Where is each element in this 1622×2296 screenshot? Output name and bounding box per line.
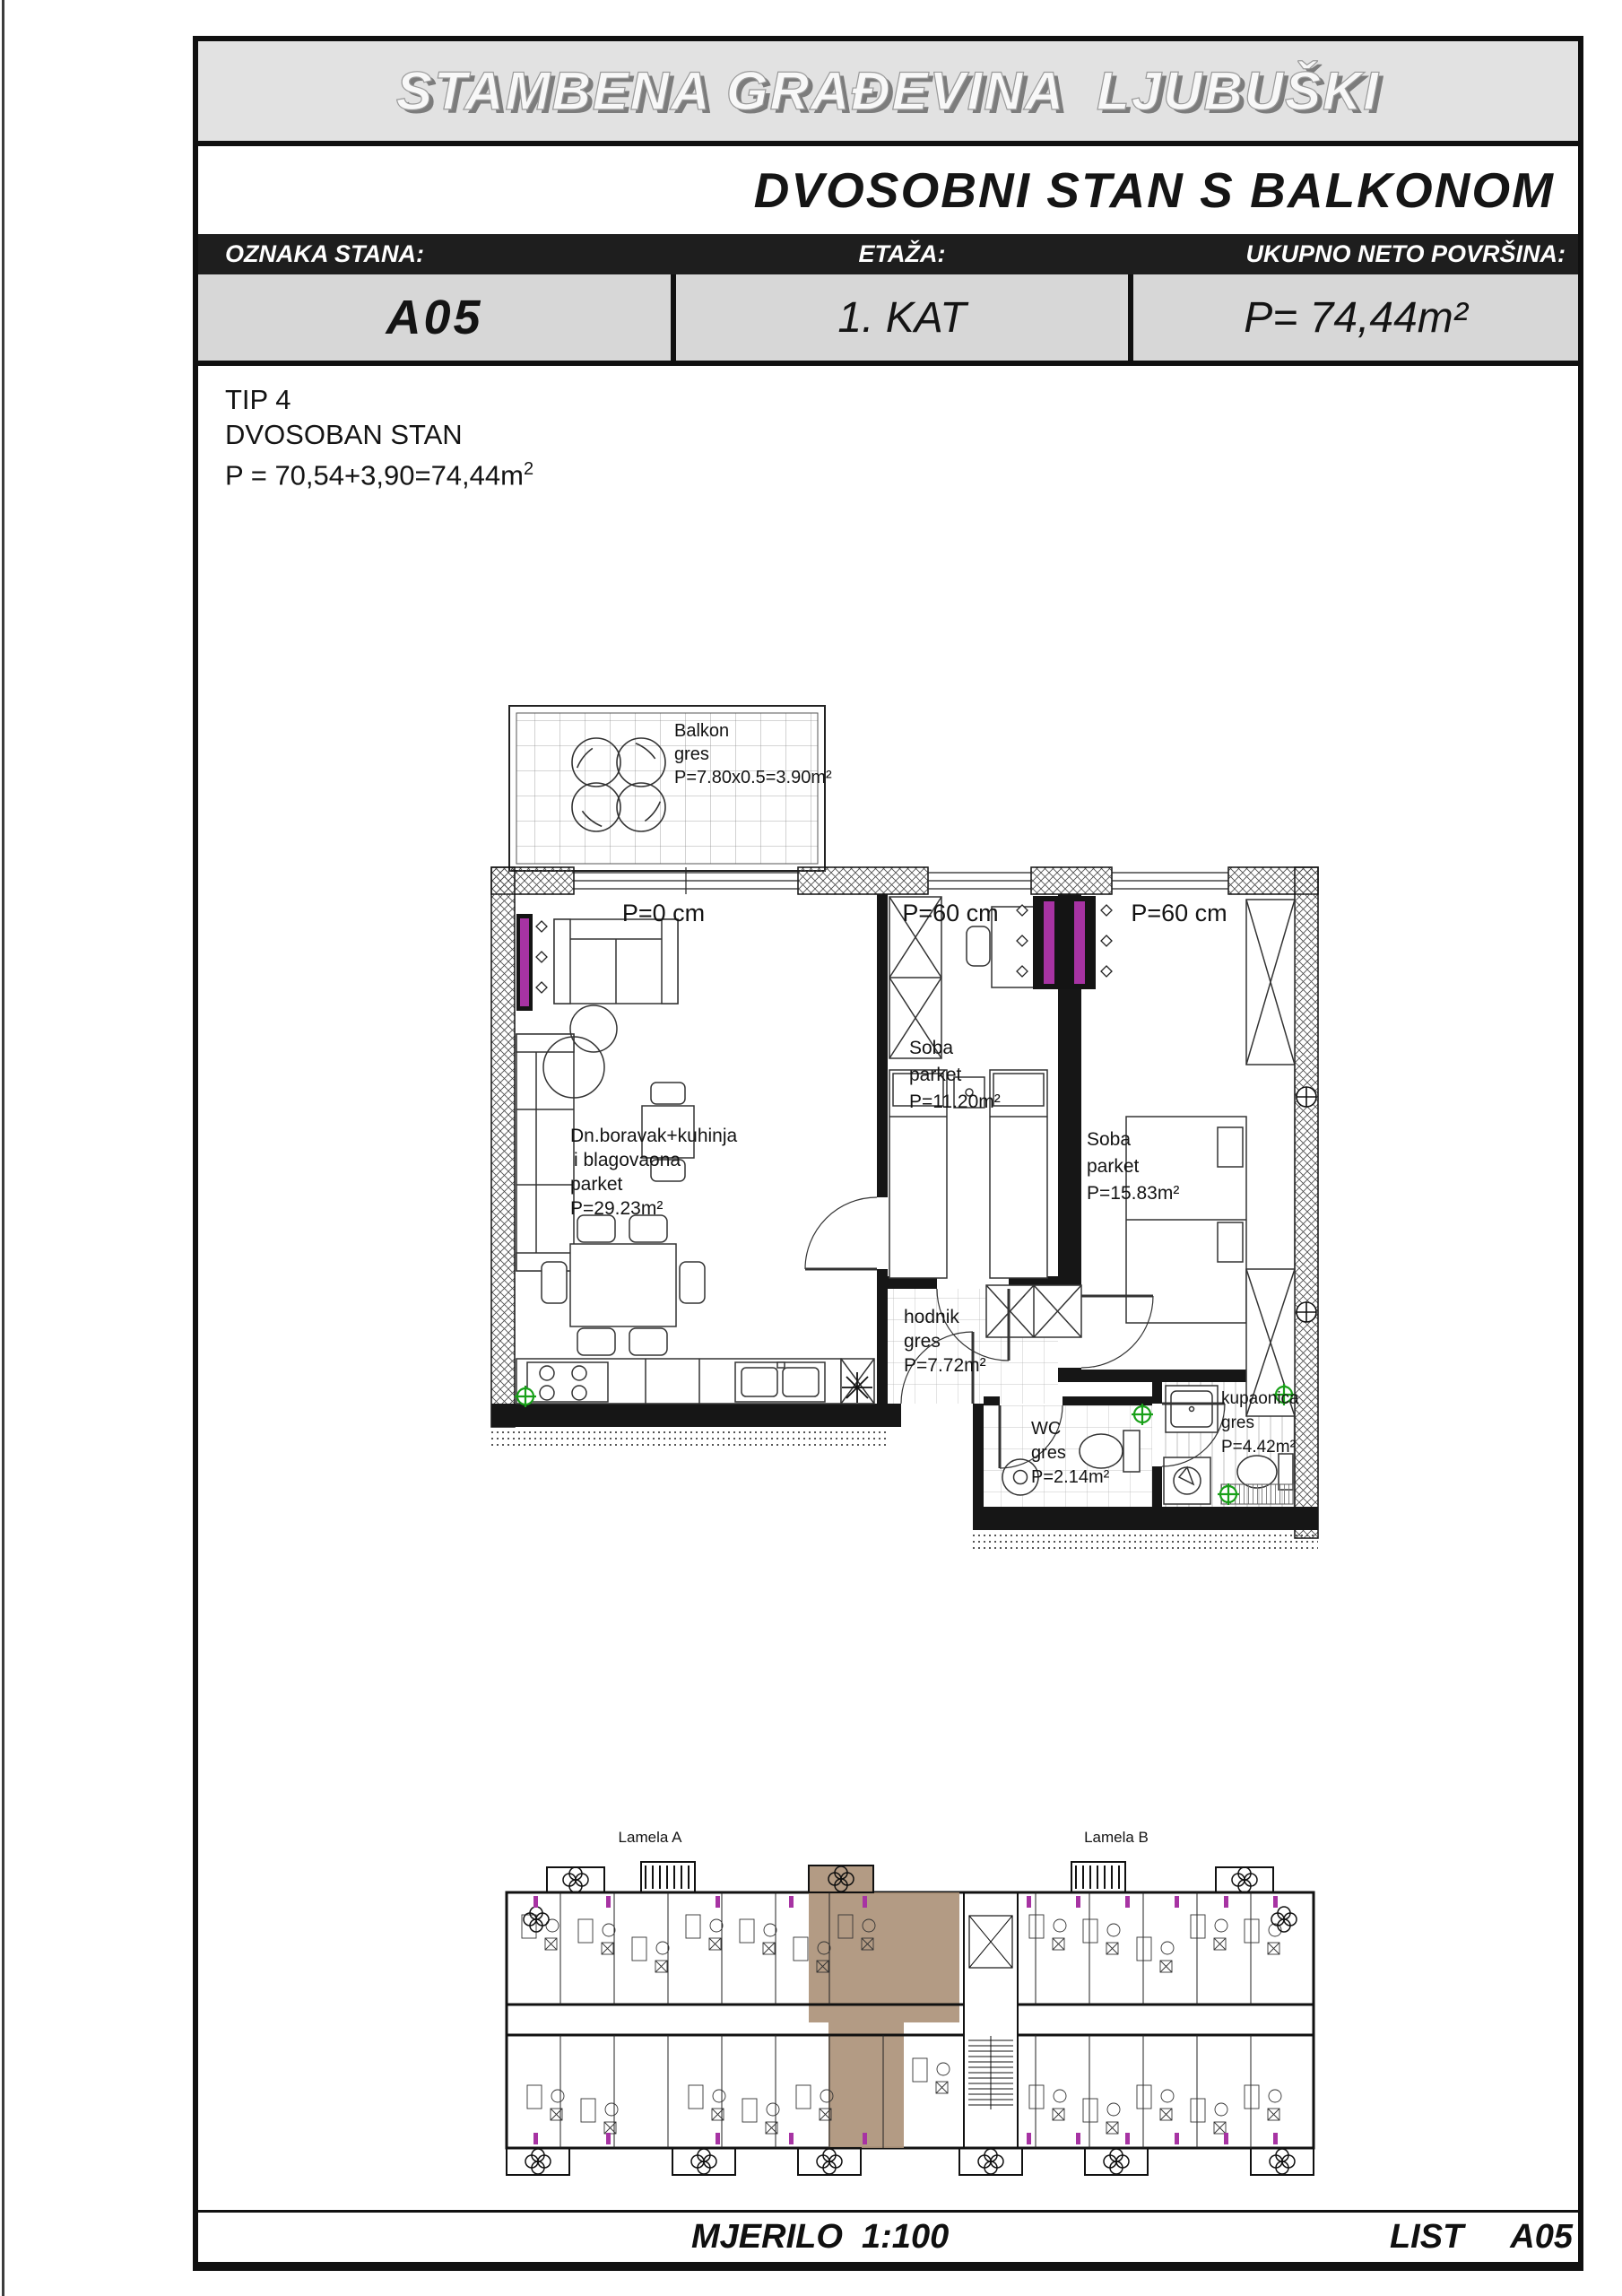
sheet-group: LIST A05 <box>1390 2218 1573 2257</box>
toilet-icon <box>1080 1431 1140 1472</box>
value-etaza: 1. KAT <box>676 274 1128 361</box>
svg-text:Dn.boravak+kuhinja: Dn.boravak+kuhinja <box>570 1126 738 1146</box>
subtitle-band: DVOSOBNI STAN S BALKONOM <box>198 146 1578 234</box>
svg-text:gres: gres <box>1031 1443 1066 1463</box>
washing-machine-icon <box>1164 1457 1210 1504</box>
svg-text:gres: gres <box>1221 1413 1254 1432</box>
balcony-label-finish: gres <box>674 744 709 764</box>
title-band: STAMBENA GRAĐEVINA LJUBUŠKI <box>198 41 1578 146</box>
kitchen-counter <box>516 1359 874 1404</box>
page-edge-line <box>2 0 4 2296</box>
washbasin-icon <box>1166 1386 1218 1432</box>
value-neto-povrsina: P= 74,44m² <box>1133 274 1578 361</box>
svg-text:P=7.72m²: P=7.72m² <box>904 1355 986 1376</box>
label-etaza: ETAŽA: <box>676 240 1128 268</box>
svg-text:gres: gres <box>904 1331 941 1352</box>
info-header-bar: OZNAKA STANA: ETAŽA: UKUPNO NETO POVRŠIN… <box>198 234 1578 274</box>
balcony-label-name: Balkon <box>674 721 729 741</box>
svg-text:parket: parket <box>909 1065 962 1085</box>
scale-label: MJERILO 1:100 <box>691 2218 949 2257</box>
svg-text:parket: parket <box>570 1174 623 1195</box>
info-value-row: A05 1. KAT P= 74,44m² <box>198 274 1578 366</box>
label-neto-povrsina: UKUPNO NETO POVRŠINA: <box>1133 240 1578 268</box>
apartment-code: A05 <box>386 290 482 345</box>
bedroom2-furniture <box>1126 900 1295 1416</box>
apartment-type-title: DVOSOBNI STAN S BALKONOM <box>754 161 1555 219</box>
hallway-wardrobe-icon <box>986 1285 1081 1337</box>
balcony-label-area: P=7.80x0.5=3.90m² <box>674 768 832 787</box>
svg-text:hodnik: hodnik <box>904 1307 959 1327</box>
sink-icon <box>735 1362 825 1402</box>
svg-text:P=2.14m²: P=2.14m² <box>1031 1467 1110 1487</box>
floor-plan: Balkon gres P=7.80x0.5=3.90m² <box>484 695 1331 1561</box>
svg-text:parket: parket <box>1087 1156 1140 1177</box>
svg-text:Soba: Soba <box>1087 1129 1131 1150</box>
vent-icon <box>1297 1302 1316 1322</box>
sheet-number: A05 <box>1510 2218 1573 2257</box>
svg-text:kupaonica: kupaonica <box>1221 1389 1299 1408</box>
label-oznaka-stana: OZNAKA STANA: <box>198 240 671 268</box>
footer-band: MJERILO 1:100 LIST A05 <box>193 2210 1583 2262</box>
building-title: STAMBENA GRAĐEVINA LJUBUŠKI <box>396 60 1380 122</box>
svg-text:i blagovaona: i blagovaona <box>574 1150 681 1170</box>
svg-text:P=15.83m²: P=15.83m² <box>1087 1183 1179 1204</box>
balcony: Balkon gres P=7.80x0.5=3.90m² <box>509 706 832 871</box>
bedroom1-label: Soba parket P=11.20m² <box>909 1038 1001 1112</box>
building-overview-plan: Lamela A Lamela B <box>493 1830 1327 2197</box>
type-line-2: DVOSOBAN STAN <box>225 417 1578 452</box>
parapet-p0: P=0 cm <box>622 900 705 926</box>
value-oznaka-stana: A05 <box>198 274 671 361</box>
star-symbol-icon <box>842 1372 872 1403</box>
parapet-p60-2: P=60 cm <box>1131 900 1227 926</box>
parapet-p60-1: P=60 cm <box>902 900 998 926</box>
lamela-b-label: Lamela B <box>1084 1830 1149 1846</box>
bedroom1-furniture <box>889 897 1047 1278</box>
vent-icon <box>1297 1087 1316 1107</box>
wardrobe-icon <box>1246 900 1295 1065</box>
lamela-a-label: Lamela A <box>619 1830 683 1846</box>
parapet-labels: P=0 cm P=60 cm P=60 cm <box>622 900 1227 926</box>
svg-text:WC: WC <box>1031 1419 1061 1439</box>
svg-text:P=29.23m²: P=29.23m² <box>570 1198 663 1219</box>
svg-text:P=4.42m²: P=4.42m² <box>1221 1438 1296 1457</box>
svg-text:Soba: Soba <box>909 1038 953 1058</box>
sheet-label: LIST <box>1390 2218 1463 2257</box>
type-line-1: TIP 4 <box>225 382 1578 417</box>
svg-text:P=11.20m²: P=11.20m² <box>909 1091 1001 1112</box>
type-line-3: P = 70,54+3,90=74,44m2 <box>225 452 1578 492</box>
type-description-block: TIP 4 DVOSOBAN STAN P = 70,54+3,90=74,44… <box>225 382 1578 492</box>
